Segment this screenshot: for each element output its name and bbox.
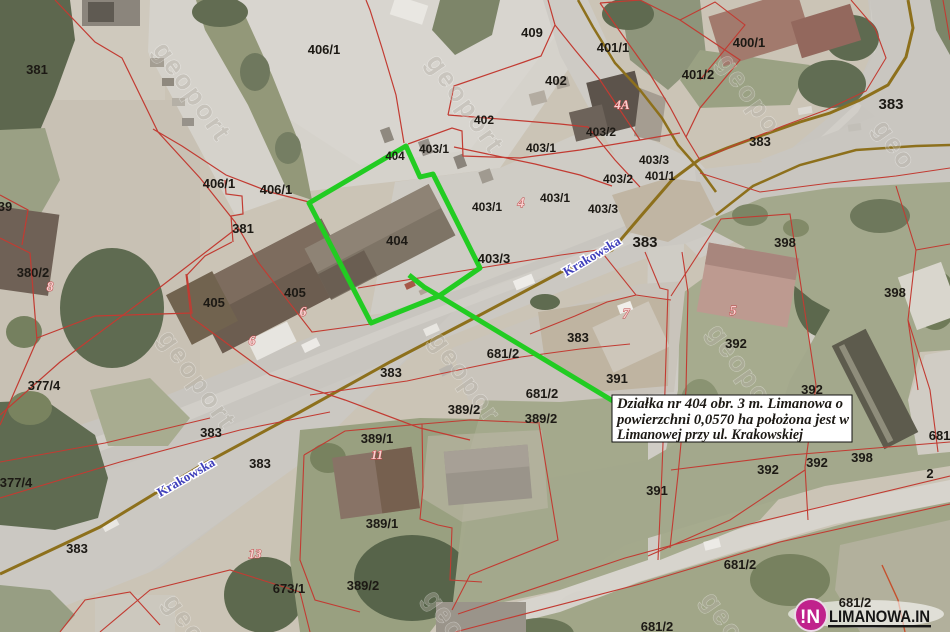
svg-text:2: 2 bbox=[926, 466, 933, 481]
svg-text:403/3: 403/3 bbox=[588, 202, 618, 216]
svg-text:powierzchni 0,0570 ha położona: powierzchni 0,0570 ha położona jest w bbox=[615, 412, 849, 428]
svg-text:381: 381 bbox=[26, 62, 48, 77]
svg-text:409: 409 bbox=[521, 25, 543, 40]
svg-text:381: 381 bbox=[232, 221, 254, 236]
svg-text:406/1: 406/1 bbox=[203, 176, 236, 191]
svg-text:389/1: 389/1 bbox=[366, 516, 399, 531]
svg-text:392: 392 bbox=[757, 462, 779, 477]
svg-text:401/1: 401/1 bbox=[645, 169, 675, 183]
svg-text:377/4: 377/4 bbox=[0, 475, 33, 490]
svg-text:404: 404 bbox=[385, 151, 405, 163]
svg-text:405: 405 bbox=[284, 285, 306, 300]
svg-text:403/2: 403/2 bbox=[586, 125, 616, 139]
svg-text:380/2: 380/2 bbox=[17, 265, 50, 280]
svg-text:389/2: 389/2 bbox=[525, 411, 558, 426]
svg-text:673/1: 673/1 bbox=[273, 581, 306, 596]
svg-text:11: 11 bbox=[371, 447, 383, 462]
svg-text:LIMANOWA.IN: LIMANOWA.IN bbox=[829, 607, 930, 626]
svg-text:Działka nr 404 obr. 3 m. Liman: Działka nr 404 obr. 3 m. Limanowa o bbox=[616, 396, 843, 412]
svg-text:403/1: 403/1 bbox=[419, 142, 449, 156]
svg-text:401/1: 401/1 bbox=[597, 40, 630, 55]
svg-text:400/1: 400/1 bbox=[733, 35, 766, 50]
svg-text:Limanowej przy ul. Krakowskiej: Limanowej przy ul. Krakowskiej bbox=[616, 427, 804, 443]
svg-text:7: 7 bbox=[623, 307, 631, 322]
svg-text:383: 383 bbox=[749, 134, 771, 149]
svg-text:406/1: 406/1 bbox=[260, 182, 293, 197]
svg-text:401/2: 401/2 bbox=[682, 67, 715, 82]
svg-text:402: 402 bbox=[474, 113, 494, 127]
svg-text:392: 392 bbox=[725, 336, 747, 351]
svg-text:6: 6 bbox=[300, 305, 307, 320]
svg-text:681/2: 681/2 bbox=[641, 619, 674, 632]
svg-text:398: 398 bbox=[774, 235, 796, 250]
svg-text:405: 405 bbox=[203, 295, 225, 310]
svg-text:389/1: 389/1 bbox=[361, 431, 394, 446]
svg-text:406/1: 406/1 bbox=[308, 42, 341, 57]
svg-text:403/1: 403/1 bbox=[472, 200, 502, 214]
svg-text:398: 398 bbox=[884, 285, 906, 300]
svg-text:4: 4 bbox=[517, 196, 525, 211]
svg-text:383: 383 bbox=[878, 96, 903, 113]
svg-text:383: 383 bbox=[200, 425, 222, 440]
svg-text:681/2: 681/2 bbox=[929, 428, 950, 443]
svg-text:681/2: 681/2 bbox=[724, 557, 757, 572]
svg-text:4A: 4A bbox=[613, 97, 630, 112]
svg-text:383: 383 bbox=[66, 541, 88, 556]
svg-text:!N: !N bbox=[800, 607, 820, 628]
svg-text:389/2: 389/2 bbox=[448, 402, 481, 417]
svg-text:402: 402 bbox=[545, 73, 567, 88]
svg-text:391: 391 bbox=[646, 483, 668, 498]
svg-text:403/3: 403/3 bbox=[639, 153, 669, 167]
svg-text:39: 39 bbox=[0, 199, 12, 214]
svg-text:403/1: 403/1 bbox=[540, 191, 570, 205]
svg-text:403/2: 403/2 bbox=[603, 172, 633, 186]
svg-text:681/2: 681/2 bbox=[487, 346, 520, 361]
svg-text:392: 392 bbox=[806, 455, 828, 470]
svg-text:403/3: 403/3 bbox=[478, 251, 511, 266]
svg-text:389/2: 389/2 bbox=[347, 578, 380, 593]
svg-text:681/2: 681/2 bbox=[526, 386, 559, 401]
svg-text:383: 383 bbox=[567, 330, 589, 345]
svg-text:377/4: 377/4 bbox=[28, 378, 61, 393]
svg-text:403/1: 403/1 bbox=[526, 141, 556, 155]
svg-text:383: 383 bbox=[632, 234, 657, 251]
svg-text:391: 391 bbox=[606, 371, 628, 386]
svg-text:404: 404 bbox=[386, 233, 408, 248]
svg-text:6: 6 bbox=[249, 334, 256, 349]
svg-text:8: 8 bbox=[47, 280, 54, 295]
svg-text:383: 383 bbox=[249, 456, 271, 471]
svg-text:13: 13 bbox=[249, 546, 263, 561]
svg-text:5: 5 bbox=[730, 304, 737, 319]
svg-text:398: 398 bbox=[851, 450, 873, 465]
svg-text:383: 383 bbox=[380, 365, 402, 380]
